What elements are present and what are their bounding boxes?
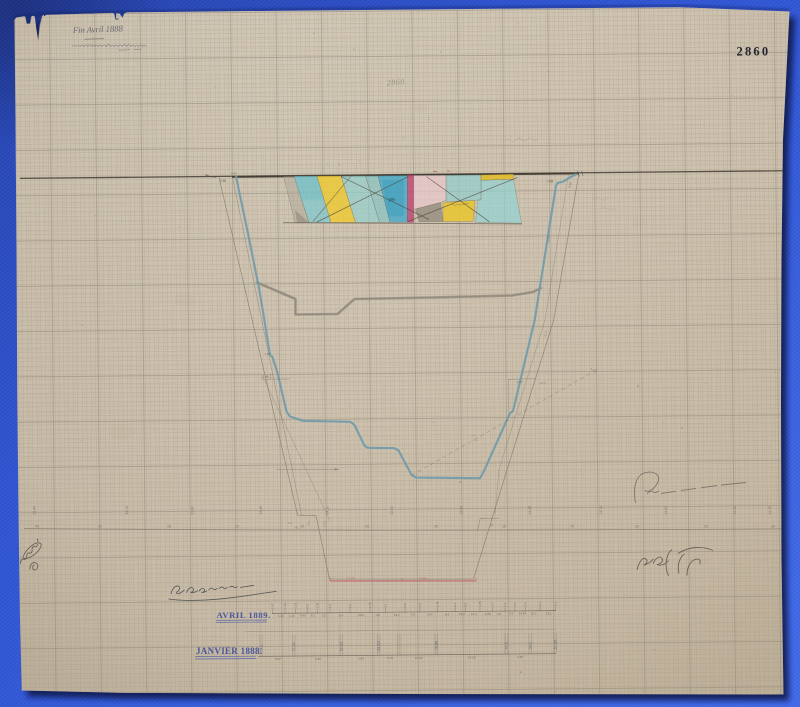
svg-text:3.4: 3.4 [509, 612, 513, 616]
svg-text:34.45: 34.45 [377, 641, 381, 651]
svg-text:2.47: 2.47 [271, 603, 275, 609]
svg-text:2860: 2860 [737, 44, 771, 58]
svg-text:3.15: 3.15 [294, 603, 298, 609]
svg-text:70: 70 [570, 525, 574, 529]
svg-text:4.1: 4.1 [384, 603, 388, 608]
svg-text:2.60: 2.60 [517, 380, 523, 384]
svg-text:1.8: 1.8 [418, 603, 422, 608]
svg-text:2.47: 2.47 [427, 613, 433, 617]
svg-text:22.60: 22.60 [390, 506, 394, 515]
svg-text:13.85: 13.85 [460, 506, 464, 515]
svg-text:12.60: 12.60 [664, 506, 668, 515]
svg-text:2.2: 2.2 [453, 603, 457, 608]
svg-text:2860.: 2860. [387, 77, 408, 87]
svg-text:10: 10 [502, 525, 506, 529]
svg-text:1.10: 1.10 [283, 603, 287, 609]
svg-text:1.40: 1.40 [263, 375, 269, 379]
svg-text:12.35: 12.35 [768, 506, 772, 515]
svg-text:2.15: 2.15 [368, 602, 372, 608]
svg-text:0.8: 0.8 [306, 604, 310, 609]
svg-text:34.1: 34.1 [528, 642, 532, 649]
svg-text:6.40: 6.40 [300, 614, 306, 618]
svg-text:13.12: 13.12 [599, 506, 603, 515]
svg-text:1.40: 1.40 [265, 352, 271, 356]
svg-text:2.65: 2.65 [478, 601, 482, 607]
svg-text:4.6: 4.6 [497, 612, 501, 616]
svg-text:6.70: 6.70 [387, 656, 393, 660]
svg-text:40: 40 [35, 525, 39, 529]
svg-text:10: 10 [635, 525, 639, 529]
svg-text:12.32: 12.32 [733, 506, 737, 515]
svg-text:1.35: 1.35 [316, 602, 320, 608]
svg-text:AVRIL 1889.: AVRIL 1889. [217, 610, 271, 620]
svg-text:5.47: 5.47 [275, 657, 281, 661]
svg-text:5.1: 5.1 [322, 614, 326, 618]
svg-text:3.1: 3.1 [503, 602, 507, 607]
svg-text:5.4: 5.4 [445, 612, 449, 616]
svg-text:14.3: 14.3 [459, 612, 465, 616]
svg-text:24.10: 24.10 [326, 506, 330, 515]
svg-text:8.1: 8.1 [311, 614, 315, 618]
svg-text:5.90: 5.90 [231, 172, 237, 176]
svg-text:75.88: 75.88 [434, 641, 438, 651]
svg-text:JANVIER 1888.: JANVIER 1888. [196, 646, 262, 656]
svg-text:(2.3): (2.3) [540, 381, 546, 385]
svg-text:2a: 2a [490, 523, 494, 527]
svg-text:1.40: 1.40 [278, 614, 284, 618]
svg-text:Fin Avril 1888: Fin Avril 1888 [72, 23, 124, 35]
svg-text:1.85: 1.85 [485, 612, 491, 616]
svg-text:2.50: 2.50 [220, 179, 226, 183]
svg-text:4.2: 4.2 [328, 604, 332, 609]
svg-text:10: 10 [434, 525, 438, 529]
svg-text:19.45: 19.45 [259, 506, 263, 515]
svg-text:4.1: 4.1 [411, 613, 415, 617]
svg-text:14.60: 14.60 [468, 655, 476, 659]
svg-text:1.2: 1.2 [513, 602, 517, 607]
svg-text:2.60: 2.60 [358, 657, 364, 661]
svg-text:2.1: 2.1 [288, 521, 292, 525]
svg-text:7.65: 7.65 [547, 180, 553, 184]
svg-text:10: 10 [300, 525, 304, 529]
svg-text:10: 10 [365, 525, 369, 529]
svg-text:10: 10 [771, 525, 775, 529]
svg-text:0.9: 0.9 [464, 603, 468, 608]
svg-text:10: 10 [98, 525, 102, 529]
svg-text:21.80: 21.80 [191, 506, 195, 515]
svg-text:10: 10 [167, 525, 171, 529]
svg-text:13.85: 13.85 [419, 577, 427, 581]
svg-text:10.50: 10.50 [415, 656, 423, 660]
svg-text:10.4: 10.4 [471, 612, 477, 616]
svg-text:23.15: 23.15 [125, 506, 129, 515]
svg-text:3.3: 3.3 [538, 602, 542, 607]
svg-text:17.35: 17.35 [347, 577, 355, 581]
svg-text:71.32: 71.32 [292, 642, 296, 652]
svg-text:23.40: 23.40 [33, 506, 37, 515]
svg-text:10: 10 [704, 525, 708, 529]
svg-text:3.45: 3.45 [436, 601, 440, 607]
svg-text:3.6: 3.6 [348, 604, 352, 609]
svg-text:2.1: 2.1 [554, 602, 558, 607]
svg-text:6.69: 6.69 [315, 657, 321, 661]
svg-text:3.48: 3.48 [517, 655, 523, 659]
svg-text:4.04: 4.04 [358, 613, 364, 617]
svg-text:13.45: 13.45 [528, 506, 532, 515]
svg-text:1.10: 1.10 [289, 614, 295, 618]
svg-text:10: 10 [235, 525, 239, 529]
svg-text:2.8: 2.8 [524, 602, 528, 607]
svg-text:5.4: 5.4 [339, 613, 343, 617]
svg-text:40.: 40. [295, 526, 299, 530]
svg-text:4.6: 4.6 [376, 613, 380, 617]
svg-text:10.1: 10.1 [531, 611, 537, 615]
svg-text:14.04: 14.04 [519, 612, 527, 616]
svg-text:13.1: 13.1 [546, 611, 552, 615]
svg-text:1.7: 1.7 [491, 602, 495, 607]
svg-text:12.15: 12.15 [543, 330, 548, 338]
svg-text:57.85: 57.85 [553, 640, 557, 650]
svg-text:2.9: 2.9 [403, 603, 407, 608]
